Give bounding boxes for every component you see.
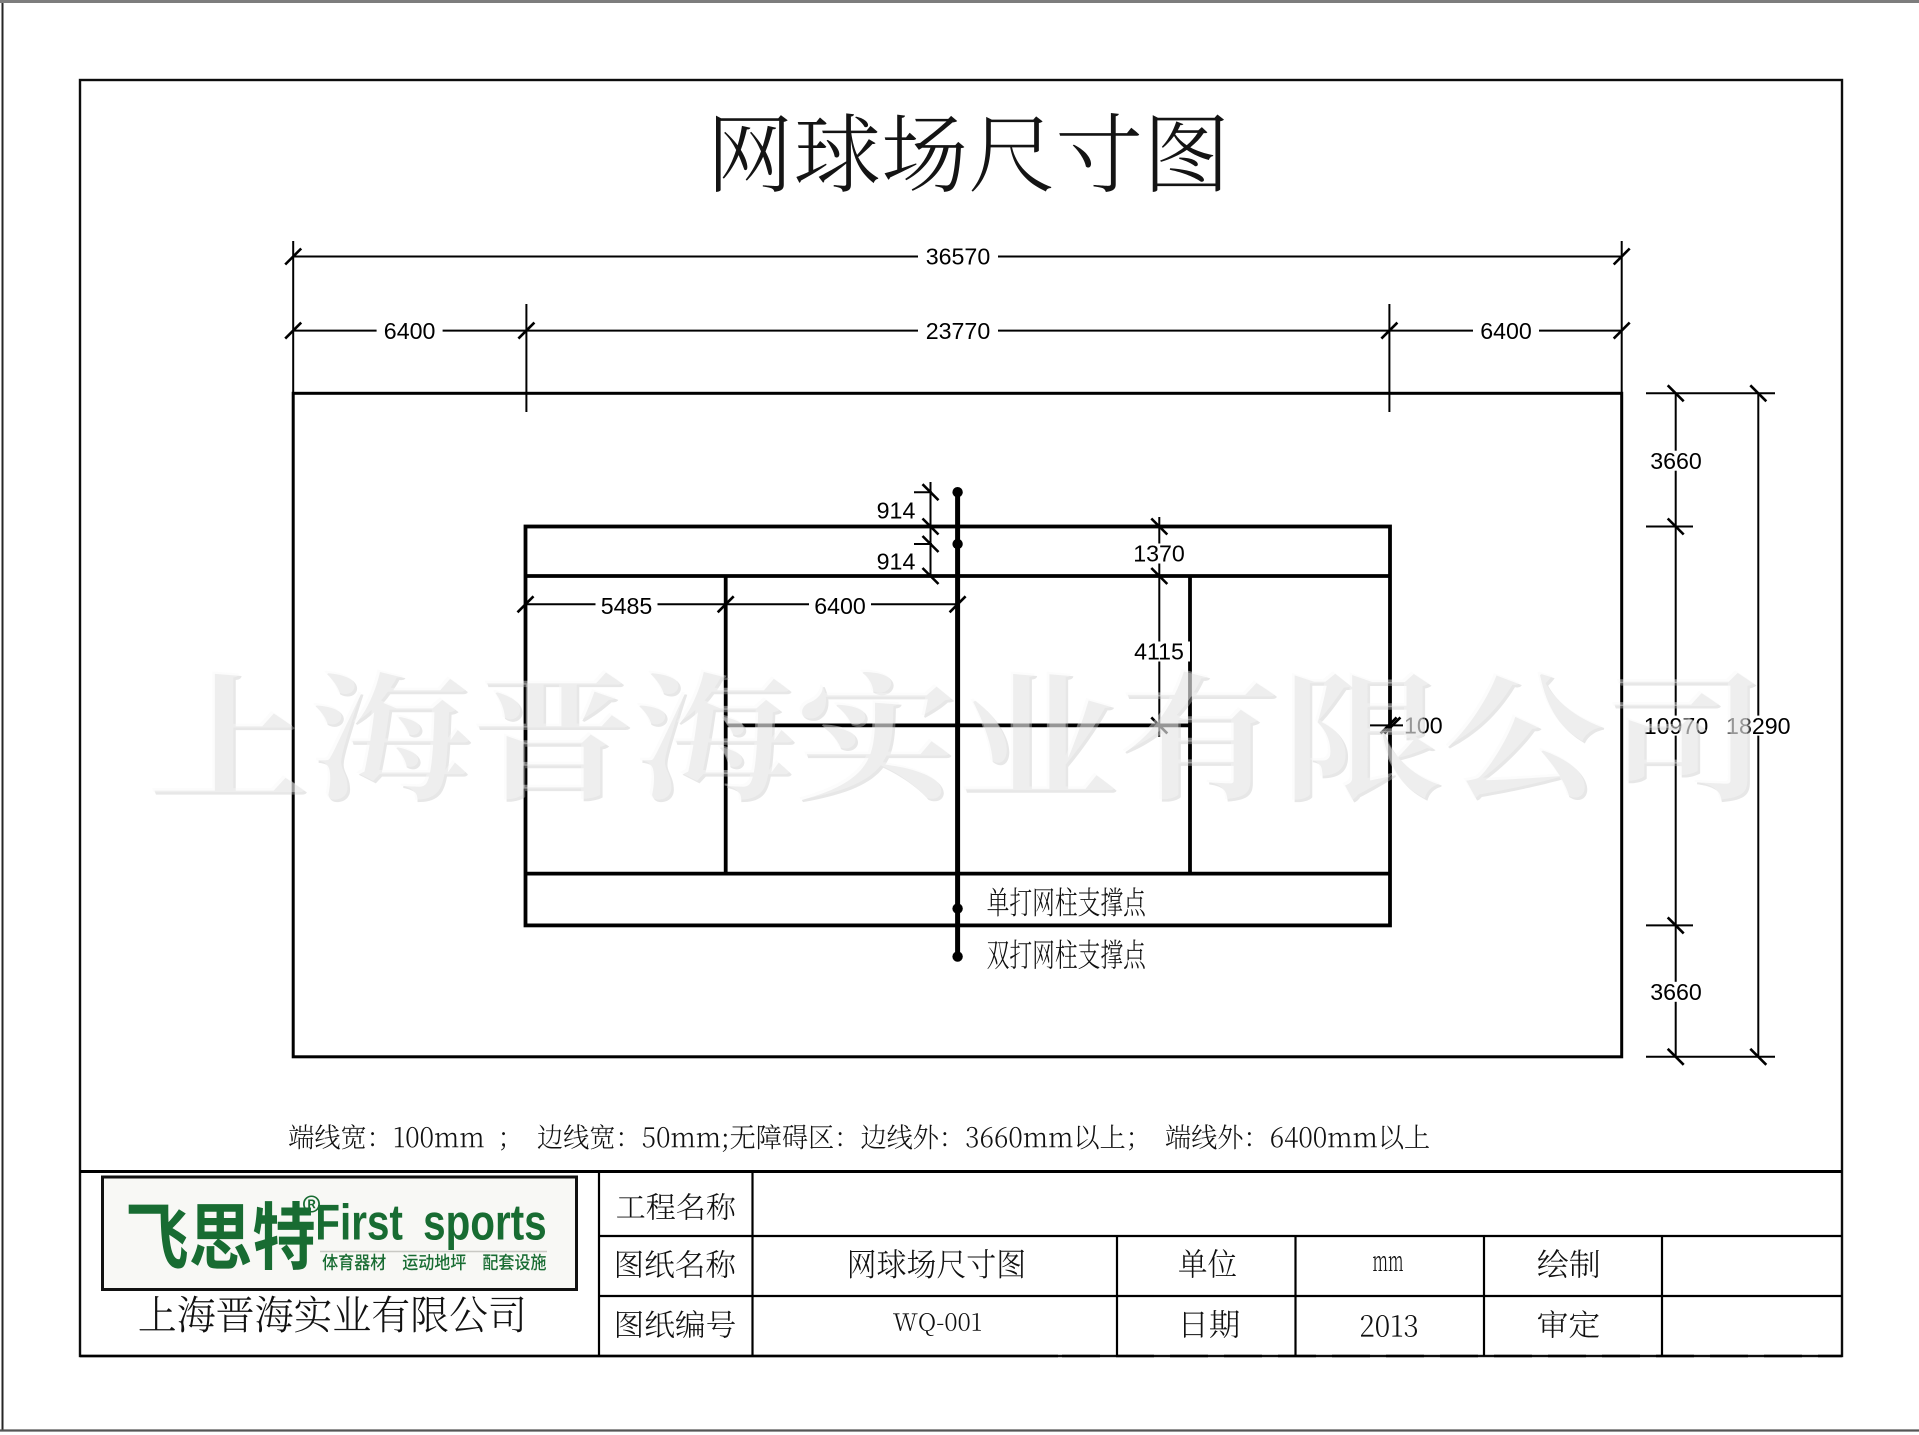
svg-text:914: 914 [877, 498, 916, 524]
svg-text:6400: 6400 [1480, 318, 1532, 344]
svg-text:1370: 1370 [1133, 541, 1185, 567]
svg-text:3660: 3660 [1650, 979, 1702, 1005]
svg-text:36570: 36570 [926, 244, 990, 270]
svg-text:5485: 5485 [601, 593, 653, 619]
svg-text:6400: 6400 [384, 318, 436, 344]
svg-text:4115: 4115 [1134, 639, 1184, 665]
svg-text:6400: 6400 [814, 593, 866, 619]
svg-text:23770: 23770 [926, 318, 990, 344]
svg-text:3660: 3660 [1650, 448, 1702, 474]
svg-text:914: 914 [877, 549, 916, 575]
